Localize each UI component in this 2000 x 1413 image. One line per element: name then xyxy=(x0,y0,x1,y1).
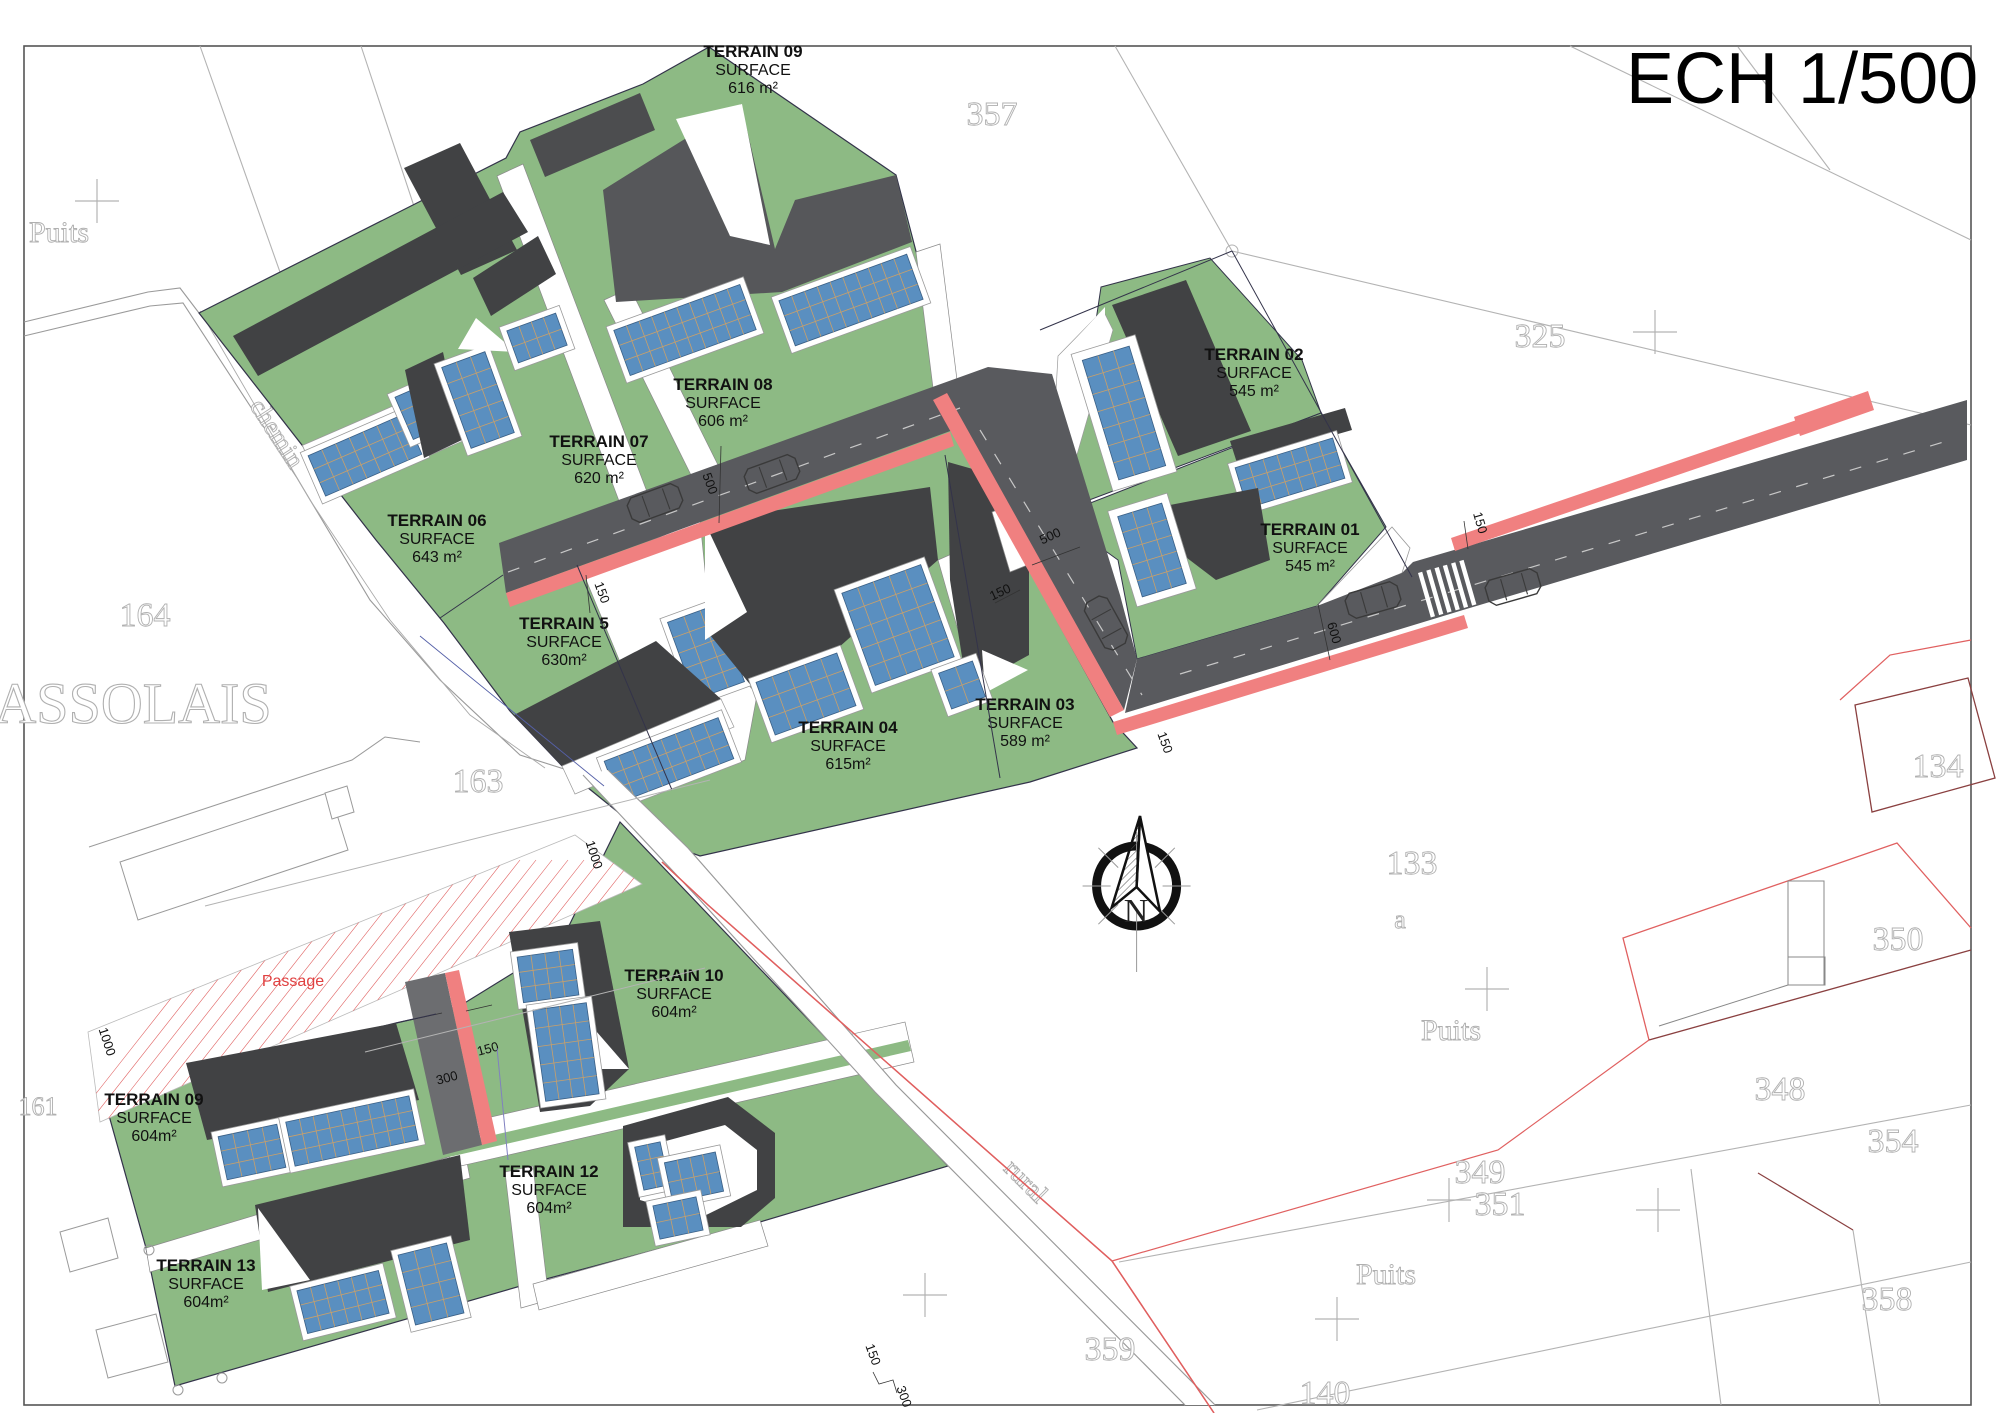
svg-text:SURFACE: SURFACE xyxy=(636,986,712,1003)
svg-text:604m²: 604m² xyxy=(651,1004,697,1021)
svg-text:SURFACE: SURFACE xyxy=(399,531,475,548)
svg-text:615m²: 615m² xyxy=(825,756,871,773)
svg-text:SURFACE: SURFACE xyxy=(168,1276,244,1293)
svg-text:SURFACE: SURFACE xyxy=(987,715,1063,732)
svg-text:ASSOLAIS: ASSOLAIS xyxy=(0,671,272,736)
svg-text:SURFACE: SURFACE xyxy=(715,62,791,79)
svg-text:348: 348 xyxy=(1755,1071,1806,1108)
svg-text:357: 357 xyxy=(967,96,1018,133)
svg-text:Puits: Puits xyxy=(1421,1014,1481,1047)
svg-text:ECH 1/500: ECH 1/500 xyxy=(1626,39,1978,119)
svg-text:325: 325 xyxy=(1515,318,1566,355)
svg-text:164: 164 xyxy=(120,597,171,634)
svg-text:TERRAIN 09: TERRAIN 09 xyxy=(104,1090,203,1109)
svg-text:643 m²: 643 m² xyxy=(412,549,462,566)
svg-text:604m²: 604m² xyxy=(526,1200,572,1217)
svg-text:350: 350 xyxy=(1873,921,1924,958)
svg-text:SURFACE: SURFACE xyxy=(1272,540,1348,557)
svg-text:354: 354 xyxy=(1868,1123,1919,1160)
svg-text:SURFACE: SURFACE xyxy=(561,452,637,469)
svg-text:TERRAIN 01: TERRAIN 01 xyxy=(1260,520,1359,539)
svg-text:620 m²: 620 m² xyxy=(574,470,624,487)
svg-text:TERRAIN 07: TERRAIN 07 xyxy=(549,432,648,451)
svg-text:SURFACE: SURFACE xyxy=(511,1182,587,1199)
svg-text:630m²: 630m² xyxy=(541,652,587,669)
svg-text:604m²: 604m² xyxy=(183,1294,229,1311)
svg-text:163: 163 xyxy=(453,763,504,800)
svg-text:TERRAIN 04: TERRAIN 04 xyxy=(798,718,898,737)
svg-text:TERRAIN 08: TERRAIN 08 xyxy=(673,375,772,394)
svg-text:SURFACE: SURFACE xyxy=(1216,365,1292,382)
svg-text:604m²: 604m² xyxy=(131,1128,177,1145)
svg-text:SURFACE: SURFACE xyxy=(810,738,886,755)
svg-text:TERRAIN 13: TERRAIN 13 xyxy=(156,1256,255,1275)
svg-text:134: 134 xyxy=(1913,748,1964,785)
svg-text:545 m²: 545 m² xyxy=(1285,558,1335,575)
svg-text:359: 359 xyxy=(1085,1331,1136,1368)
svg-text:358: 358 xyxy=(1862,1281,1913,1318)
svg-text:a: a xyxy=(1394,905,1406,934)
svg-text:N: N xyxy=(1124,893,1149,930)
svg-text:Puits: Puits xyxy=(29,216,89,249)
svg-text:161: 161 xyxy=(19,1092,58,1121)
svg-text:616 m²: 616 m² xyxy=(728,80,778,97)
svg-text:351: 351 xyxy=(1475,1186,1526,1223)
svg-text:140: 140 xyxy=(1300,1375,1351,1412)
svg-text:SURFACE: SURFACE xyxy=(685,395,761,412)
svg-text:589 m²: 589 m² xyxy=(1000,733,1050,750)
svg-text:SURFACE: SURFACE xyxy=(526,634,602,651)
svg-text:TERRAIN 03: TERRAIN 03 xyxy=(975,695,1074,714)
svg-text:TERRAIN 06: TERRAIN 06 xyxy=(387,511,486,530)
svg-text:545 m²: 545 m² xyxy=(1229,383,1279,400)
svg-text:Passage: Passage xyxy=(262,973,324,990)
svg-text:SURFACE: SURFACE xyxy=(116,1110,192,1127)
svg-text:Puits: Puits xyxy=(1356,1258,1416,1291)
svg-text:TERRAIN 09: TERRAIN 09 xyxy=(703,42,802,61)
svg-text:TERRAIN 12: TERRAIN 12 xyxy=(499,1162,598,1181)
svg-text:133: 133 xyxy=(1387,845,1438,882)
svg-text:TERRAIN 5: TERRAIN 5 xyxy=(519,614,609,633)
svg-text:606 m²: 606 m² xyxy=(698,413,748,430)
